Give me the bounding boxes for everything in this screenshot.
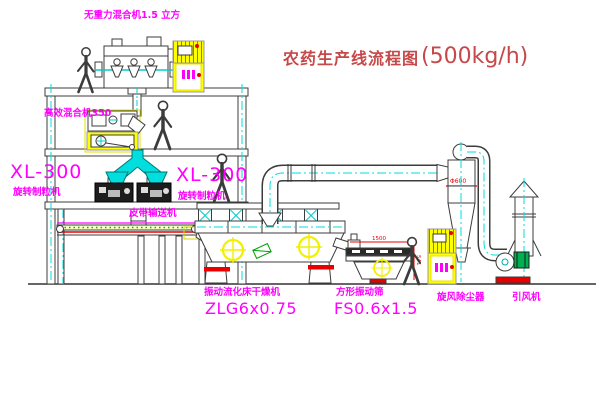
label-granulator-left-name: 旋转制粒机 [13, 188, 61, 198]
label-dryer-name: 振动流化床干燥机 [204, 288, 280, 298]
control-cabinet-1 [173, 41, 204, 92]
label-fan: 引风机 [512, 293, 541, 303]
induced-draft-fan-drawing [496, 252, 530, 283]
cyclone-diameter-dim: Φ600 [450, 178, 466, 185]
label-granulator-left-model: XL-300 [10, 161, 82, 183]
worker-figure-2 [154, 101, 171, 149]
indicator-light-icon [195, 44, 199, 48]
indicator-light-icon [449, 231, 453, 235]
granulator-left-drawing [95, 172, 133, 202]
dryer-exhaust-duct [259, 164, 448, 226]
diagram-title-text: 农药生产线流程图 [283, 45, 419, 69]
diagram-title-capacity: (500kg/h) [421, 44, 528, 69]
belt-conveyor-drawing [57, 223, 213, 244]
control-cabinet-2 [428, 229, 456, 284]
label-high-speed-mixer: 高效混合机350 [44, 109, 111, 119]
worker-figure-1 [78, 48, 94, 92]
granulator-right-drawing [137, 172, 171, 202]
label-cyclone: 旋风除尘器 [437, 293, 485, 303]
label-sieve-name: 方形振动筛 [336, 288, 384, 298]
sieve-length-dim: 1500 [372, 236, 386, 242]
label-dryer-model: ZLG6x0.75 [205, 299, 297, 318]
label-sieve-model: FS0.6x1.5 [334, 299, 418, 318]
label-belt-conveyor: 皮带输送机 [129, 209, 177, 219]
label-granulator-right-name: 旋转制粒机 [178, 192, 226, 202]
label-gravity-mixer: 无重力混合机1.5 立方 [84, 11, 180, 21]
diagram-title: 农药生产线流程图 (500kg/h) [283, 44, 528, 69]
process-flow-diagram: Φ600 [0, 0, 600, 403]
label-granulator-right-model: XL-300 [176, 164, 248, 186]
gravity-mixer-drawing [95, 37, 184, 116]
